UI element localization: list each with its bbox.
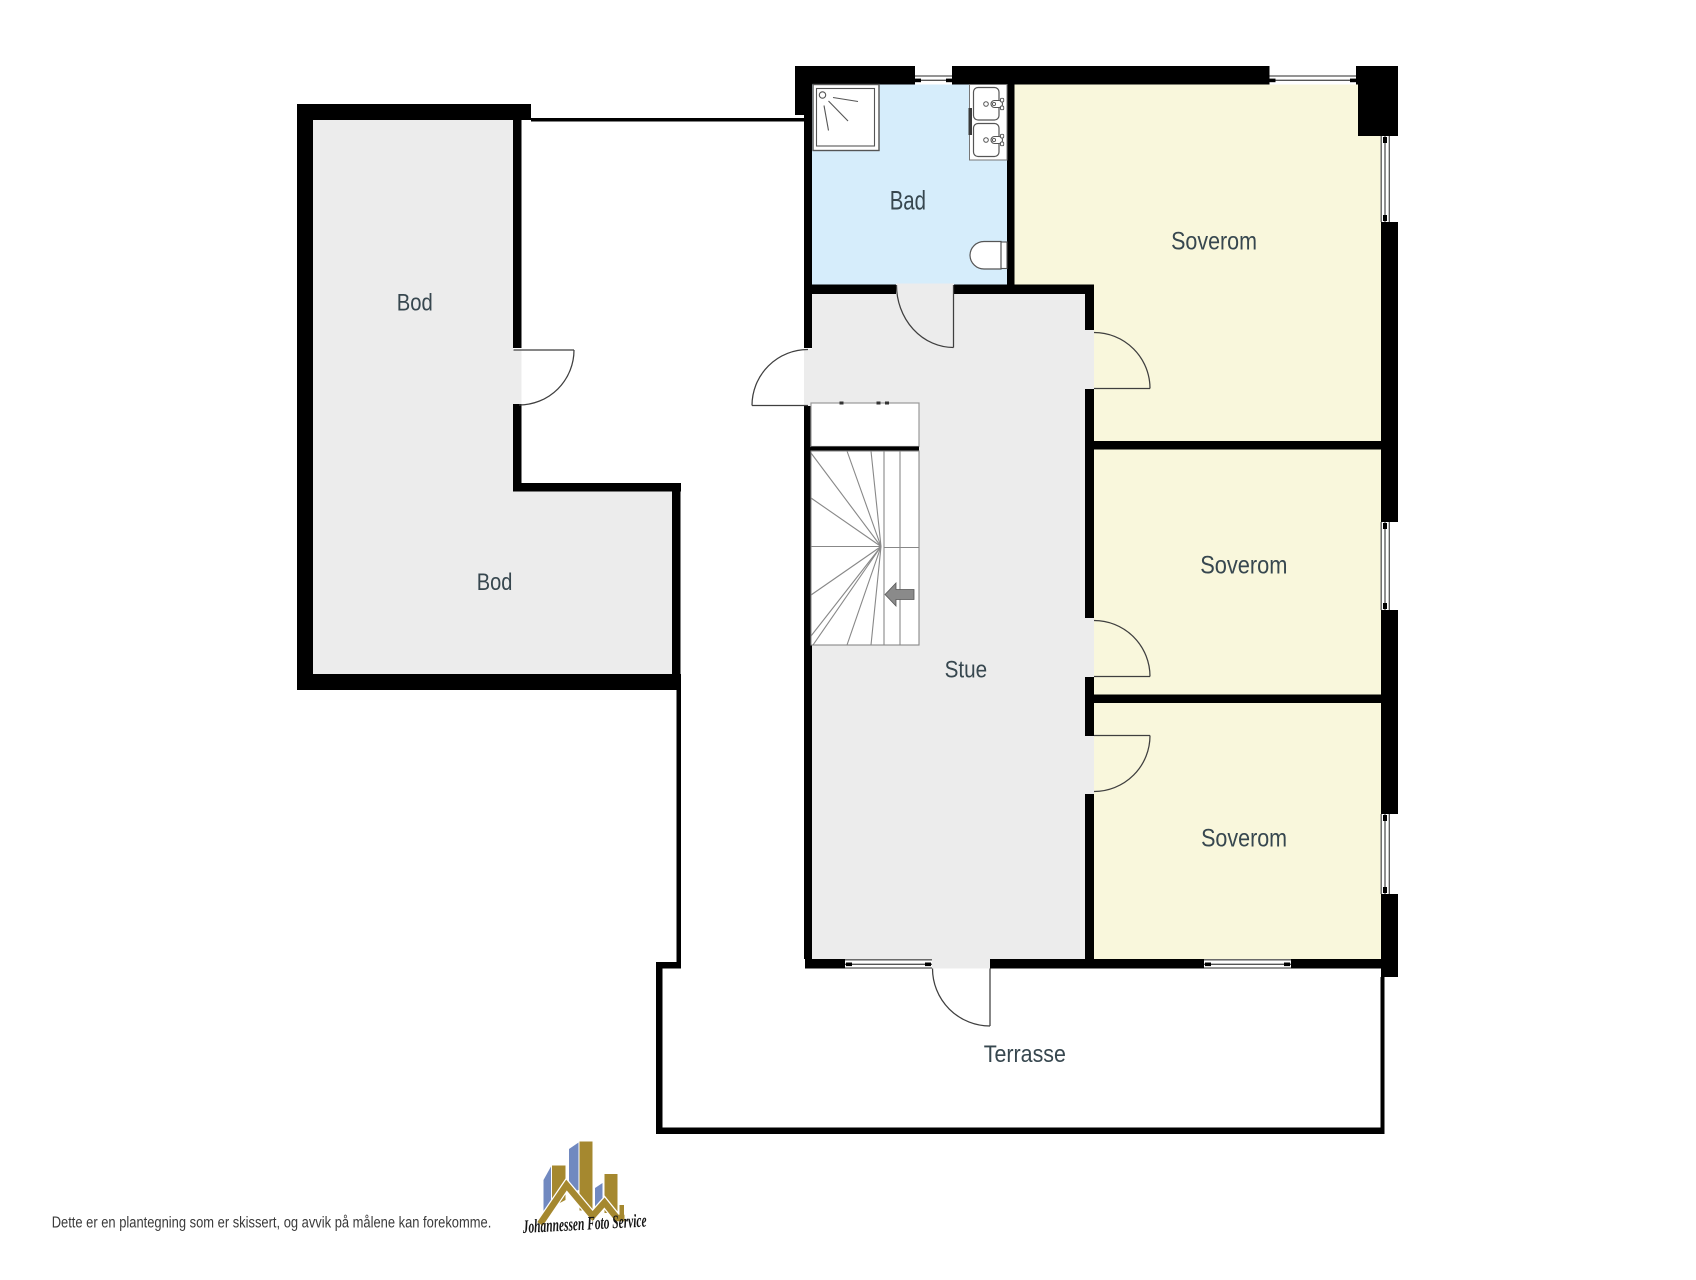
svg-text:Stue: Stue [945,656,988,683]
svg-text:Bod: Bod [397,290,433,317]
svg-text:Soverom: Soverom [1171,227,1257,255]
svg-text:Bad: Bad [890,186,926,216]
svg-text:Soverom: Soverom [1200,551,1287,579]
svg-text:Bod: Bod [477,569,513,596]
svg-text:Soverom: Soverom [1201,825,1287,853]
svg-text:Terrasse: Terrasse [984,1041,1066,1068]
svg-text:Dette er en plantegning som er: Dette er en plantegning som er skissert,… [52,1215,492,1232]
